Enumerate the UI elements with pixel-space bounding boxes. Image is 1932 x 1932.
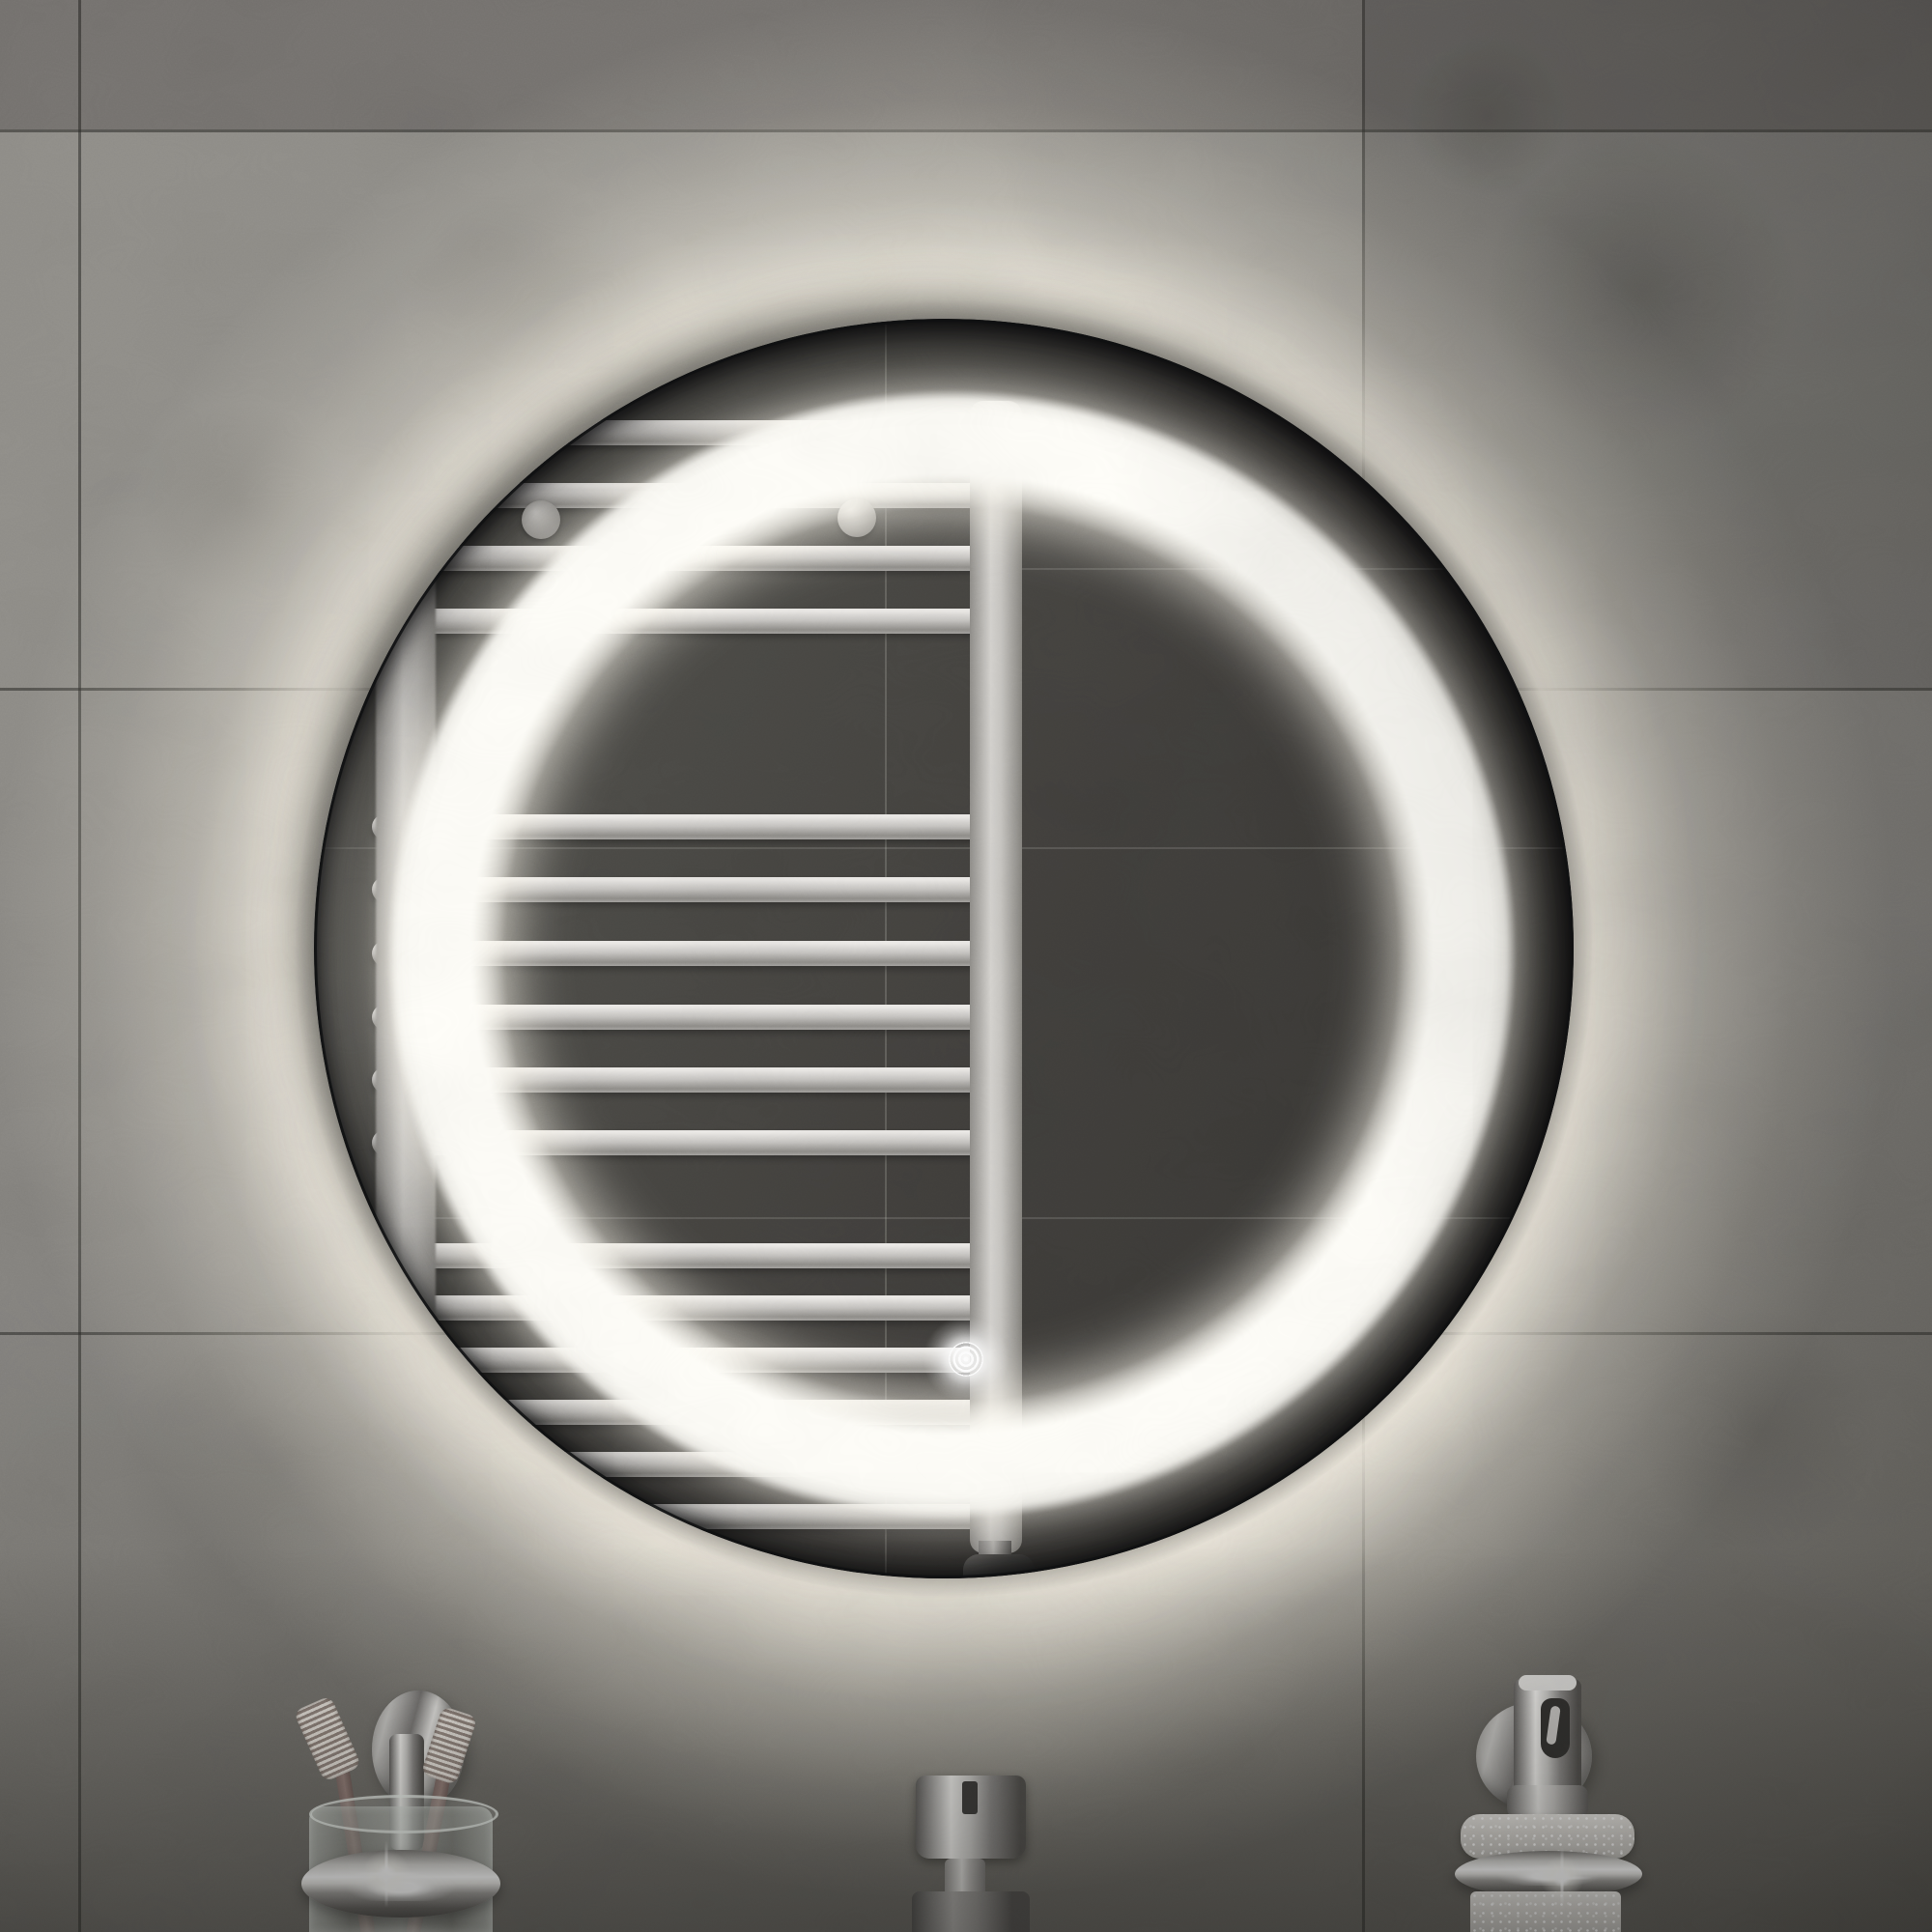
round-led-mirror [314,319,1574,1578]
toothbrush-holder [290,1681,512,1932]
dispenser-neck [1507,1785,1588,1818]
pump-head [916,1776,1026,1859]
pump-bottle-shoulder [912,1891,1030,1932]
toothbrush-bristles [294,1695,362,1782]
valve-elbow [963,1554,1035,1578]
light-flare [1531,1847,1593,1909]
touch-sensor-rings [949,1342,983,1377]
spout-highlight [1546,1705,1560,1745]
pump-notch [962,1781,978,1814]
radiator-knob [522,500,560,539]
dispenser-spout [1541,1698,1570,1758]
flare-ray [1531,1877,1593,1880]
glass-tumbler-rim [309,1795,498,1833]
bathroom-scene [0,0,1932,1932]
radiator-valve [961,1541,1048,1578]
dispenser-pump-cap [1519,1675,1577,1690]
wall-soap-dispenser [1449,1662,1662,1932]
touch-sensor-icon [923,1316,1009,1403]
grout-line-vertical [78,0,81,1932]
flare-ray [353,1873,420,1876]
light-flare [353,1840,420,1908]
soap-pump [908,1768,1034,1932]
